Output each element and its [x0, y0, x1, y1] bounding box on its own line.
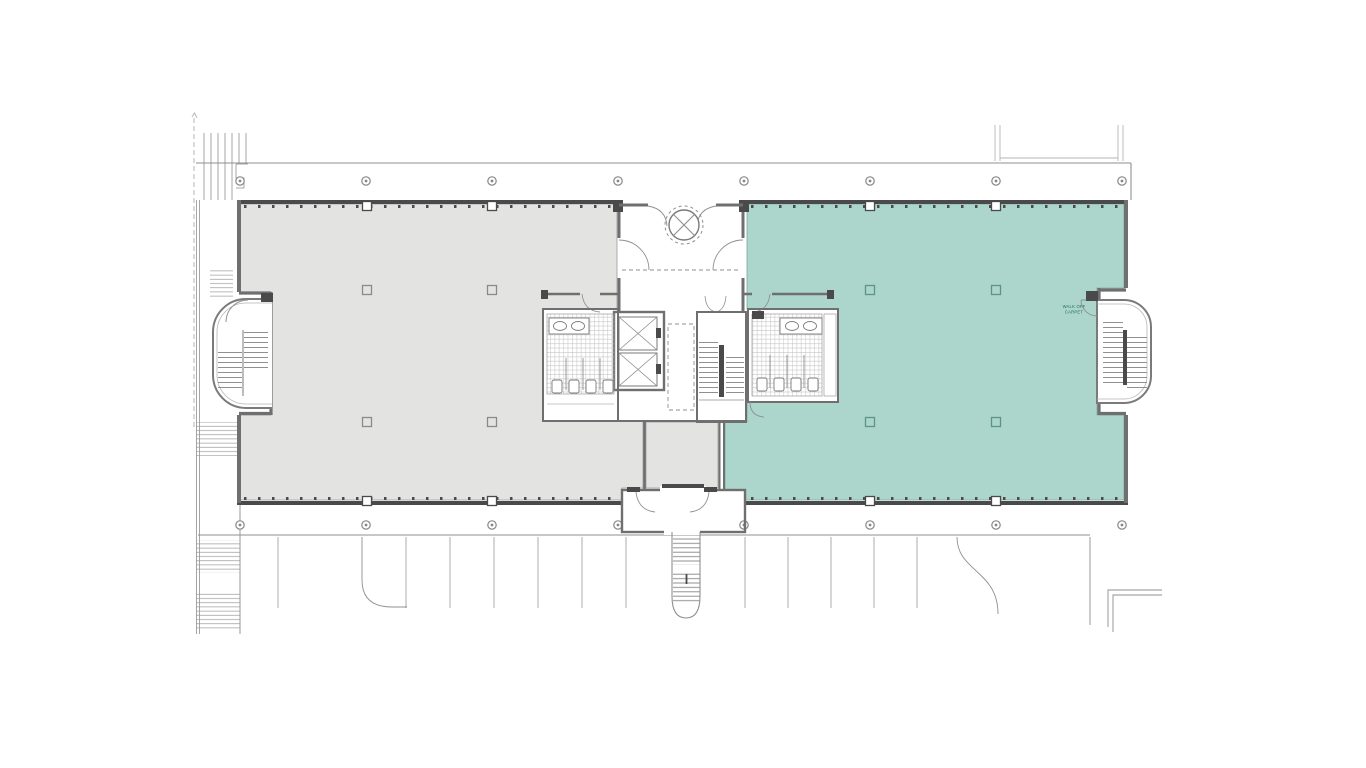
bollard-center [365, 524, 368, 527]
column-in-wall [866, 497, 875, 506]
column-in-wall [363, 202, 372, 211]
bollard-center [869, 524, 872, 527]
bollard-center [995, 524, 998, 527]
curb-corner-bottom-right [1108, 590, 1162, 632]
bollard-center [869, 180, 872, 183]
column-in-wall [488, 497, 497, 506]
bollard-center [617, 524, 620, 527]
column-in-wall [992, 497, 1001, 506]
column-in-wall [866, 202, 875, 211]
walkway-steps-upper [673, 537, 700, 565]
door-jamb [704, 487, 717, 492]
toilet [774, 378, 784, 391]
column-in-wall [488, 202, 497, 211]
floor-plan-page: WALK OFF CARPET [0, 0, 1366, 768]
sink [786, 322, 799, 331]
column-on-teal [866, 286, 875, 295]
drive-aisle-curve-right [957, 537, 998, 614]
restroom-right [748, 309, 838, 417]
toilet [552, 380, 562, 393]
elevator-door [656, 328, 661, 338]
core-lobby-room [646, 422, 718, 488]
bollard-center [995, 180, 998, 183]
bollard-center [617, 180, 620, 183]
south-walkway [672, 532, 700, 618]
entry-vestibule-north [613, 200, 749, 313]
toilet [569, 380, 579, 393]
sink [572, 322, 585, 331]
stair-door-swings [705, 296, 726, 312]
sink [804, 322, 817, 331]
core-stair [697, 312, 746, 422]
stair-door-note-line1: WALK OFF [1063, 304, 1086, 309]
column-on-gray [363, 286, 372, 295]
exterior-steps-top-left [203, 133, 248, 200]
stair-tower-west [213, 293, 273, 408]
exterior-steps-at-stair-tower [210, 269, 233, 297]
sink [554, 322, 567, 331]
toilet [757, 378, 767, 391]
parking-stalls [278, 537, 917, 608]
toilet [603, 380, 613, 393]
column-on-gray [488, 418, 497, 427]
column-on-teal [866, 418, 875, 427]
column-on-gray [488, 286, 497, 295]
stair-rail [719, 345, 724, 397]
restroom-left [543, 309, 618, 421]
sidewalk-left [196, 200, 240, 634]
stair-rail [1123, 330, 1127, 385]
wall-end-cap [541, 290, 548, 299]
bollard-center [491, 180, 494, 183]
stair-door-jamb [261, 293, 273, 302]
column-on-teal [992, 286, 1001, 295]
vestibule-bottom-opening [664, 529, 700, 535]
door-jamb [627, 487, 640, 492]
bollard-center [239, 180, 242, 183]
bollard-center [491, 524, 494, 527]
bollard-center [239, 524, 242, 527]
building-layer [237, 200, 1128, 506]
elevator-door [656, 364, 661, 374]
exterior-steps-left-middle [196, 540, 240, 573]
exterior-steps-left-lower [196, 592, 240, 630]
shaft-dashed-outline [668, 324, 694, 410]
bollard-center [743, 180, 746, 183]
toilet [586, 380, 596, 393]
toilet [791, 378, 801, 391]
vestibule-door-swings [636, 492, 709, 512]
double-entry-door [662, 484, 704, 488]
stair-door-note-line2: CARPET [1065, 310, 1083, 315]
restroom-door-jamb [752, 311, 764, 319]
elevator-bank [614, 312, 664, 390]
bollard-center [1121, 524, 1124, 527]
entry-vestibule-south [622, 484, 745, 535]
column-in-wall [363, 497, 372, 506]
column-on-teal [992, 418, 1001, 427]
toilet [808, 378, 818, 391]
drive-aisle-curve-left [362, 537, 407, 607]
floor-plan-drawing: WALK OFF CARPET [0, 0, 1366, 768]
plumbing-chase [824, 314, 836, 396]
bollard-center [1121, 180, 1124, 183]
wall-end-cap [827, 290, 834, 299]
bollard-center [365, 180, 368, 183]
stair-door-jamb [1086, 291, 1098, 301]
property-line-break-mark [192, 113, 197, 118]
column-in-wall [992, 202, 1001, 211]
column-on-gray [363, 418, 372, 427]
planter-top-right [995, 125, 1123, 161]
exterior-steps-left-upper [196, 422, 240, 456]
vestibule-door-swings [619, 240, 743, 270]
